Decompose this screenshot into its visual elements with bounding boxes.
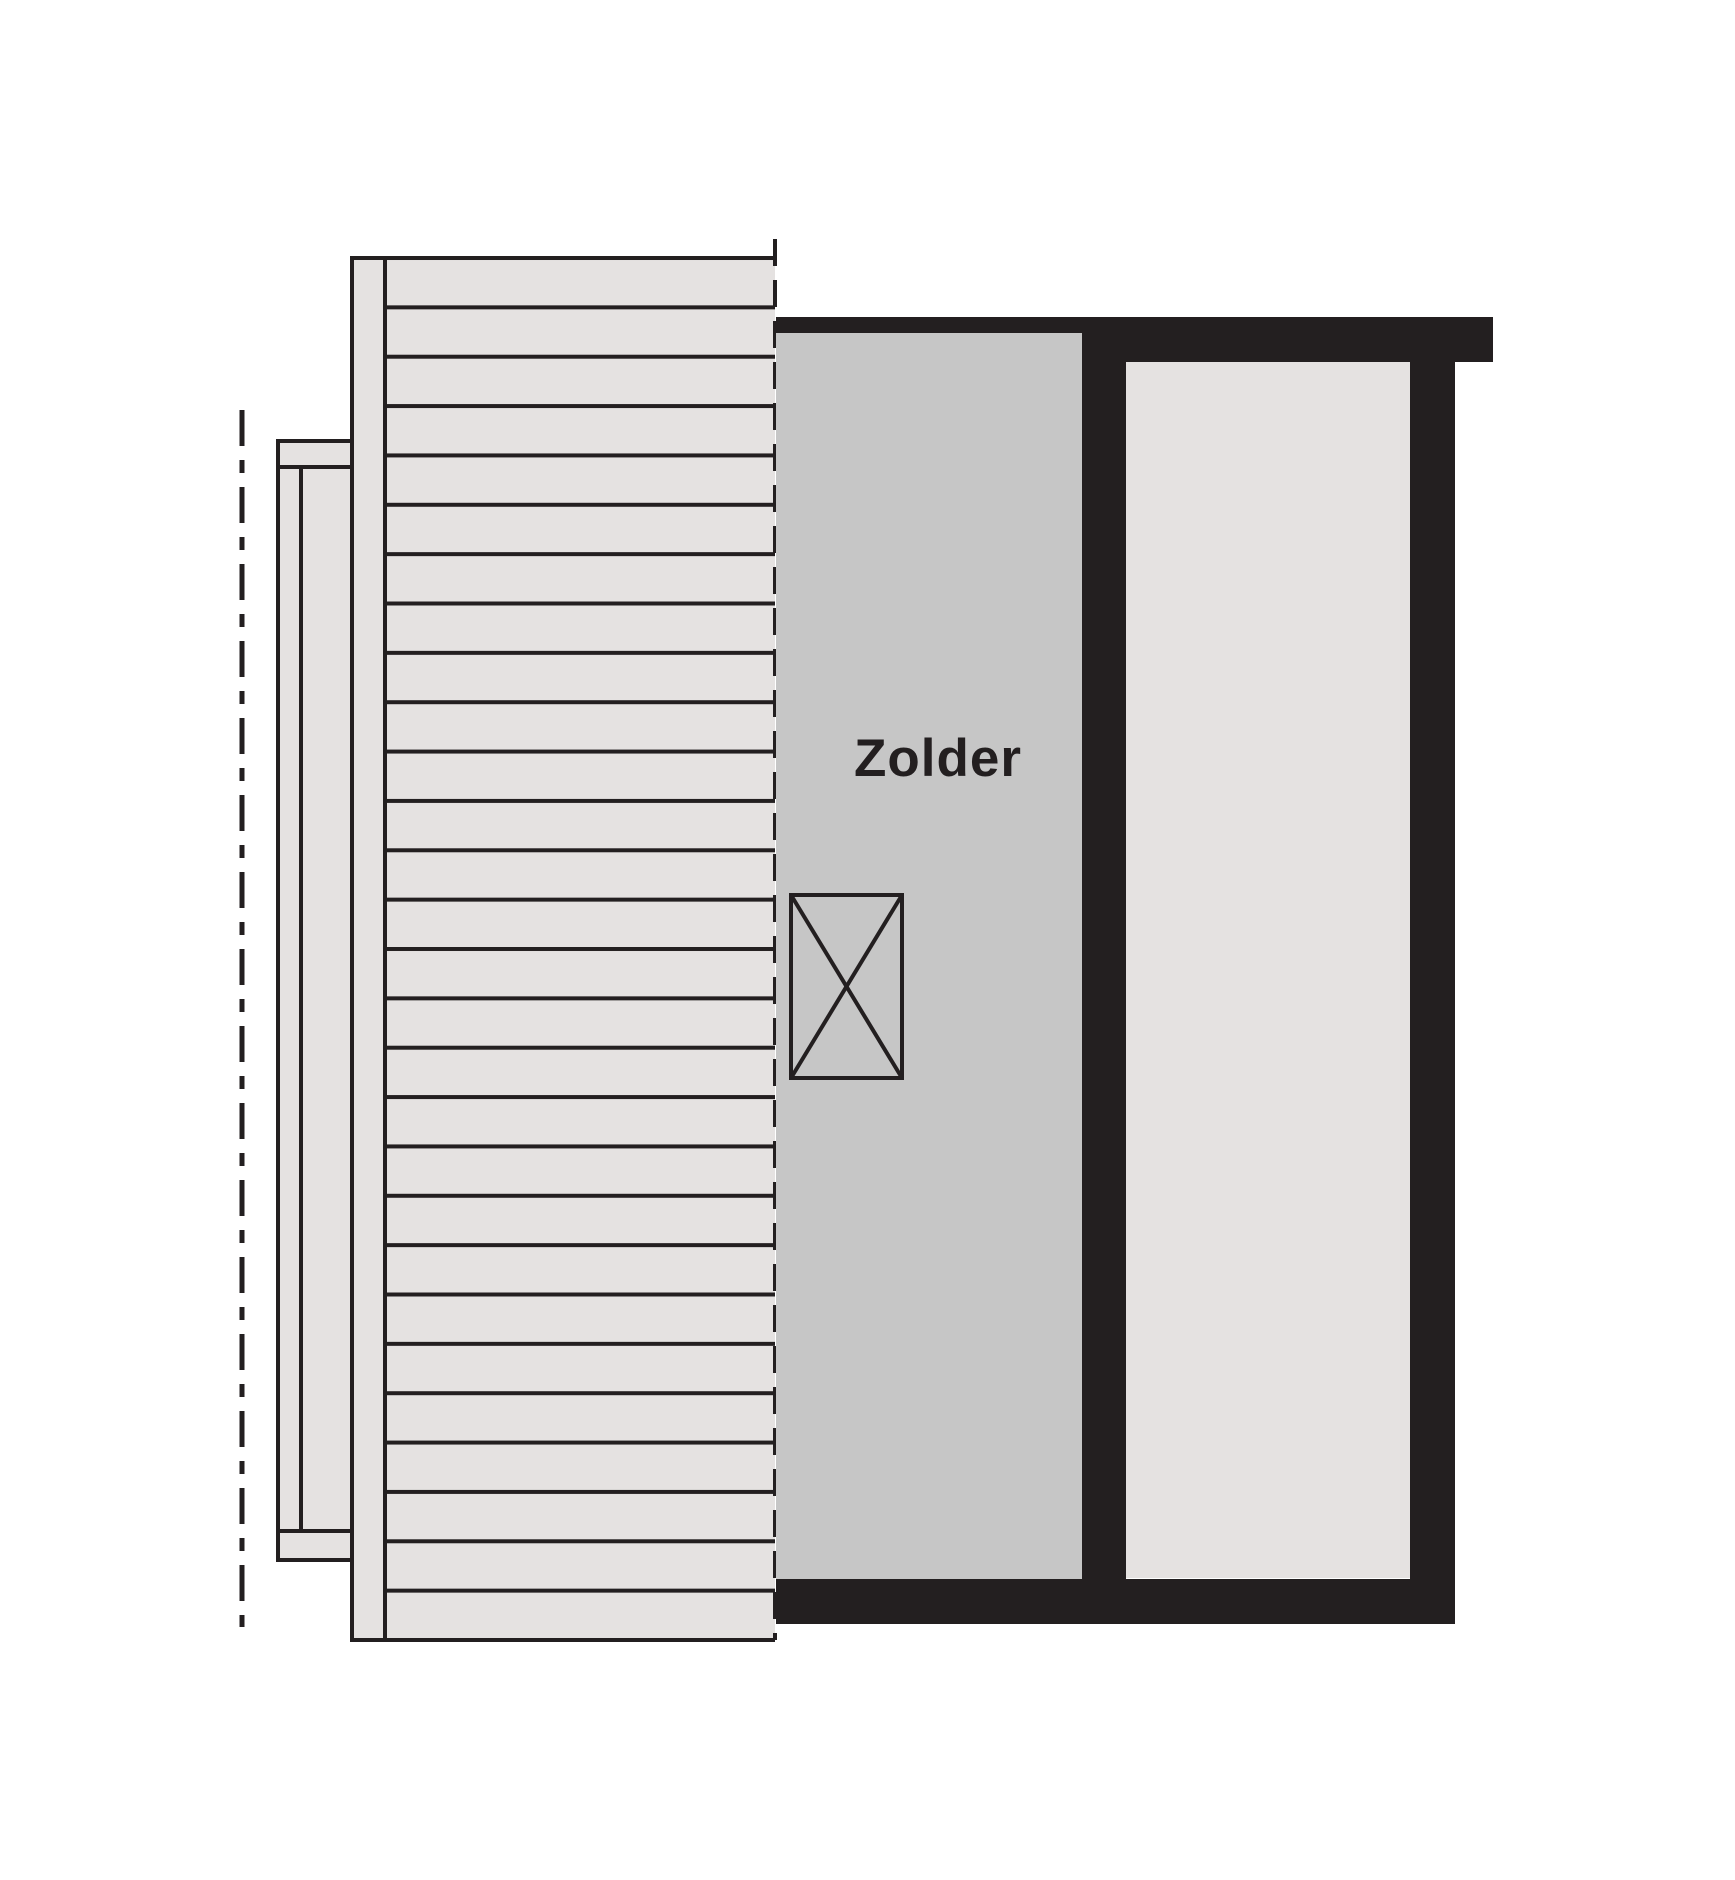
- attic-floor-area: [776, 333, 1082, 1579]
- roof-deck-hatch: [385, 258, 775, 1640]
- top-wall-over-attic: [776, 317, 1082, 333]
- attic-room-label: Zolder: [854, 729, 1022, 788]
- left-wall-section: [278, 441, 352, 1560]
- floor-plan-page: Zolder: [0, 0, 1735, 1880]
- adjacent-room-area: [1126, 362, 1410, 1578]
- attic-floor-plan: Zolder: [0, 0, 1735, 1880]
- top-wall: [1082, 317, 1493, 362]
- ridge-strip: [352, 258, 385, 1640]
- middle-wall: [1082, 317, 1126, 1624]
- right-wall: [1410, 362, 1455, 1624]
- roof-deck: [385, 258, 775, 1640]
- left-wall-body: [278, 441, 352, 1560]
- bottom-wall: [776, 1579, 1455, 1624]
